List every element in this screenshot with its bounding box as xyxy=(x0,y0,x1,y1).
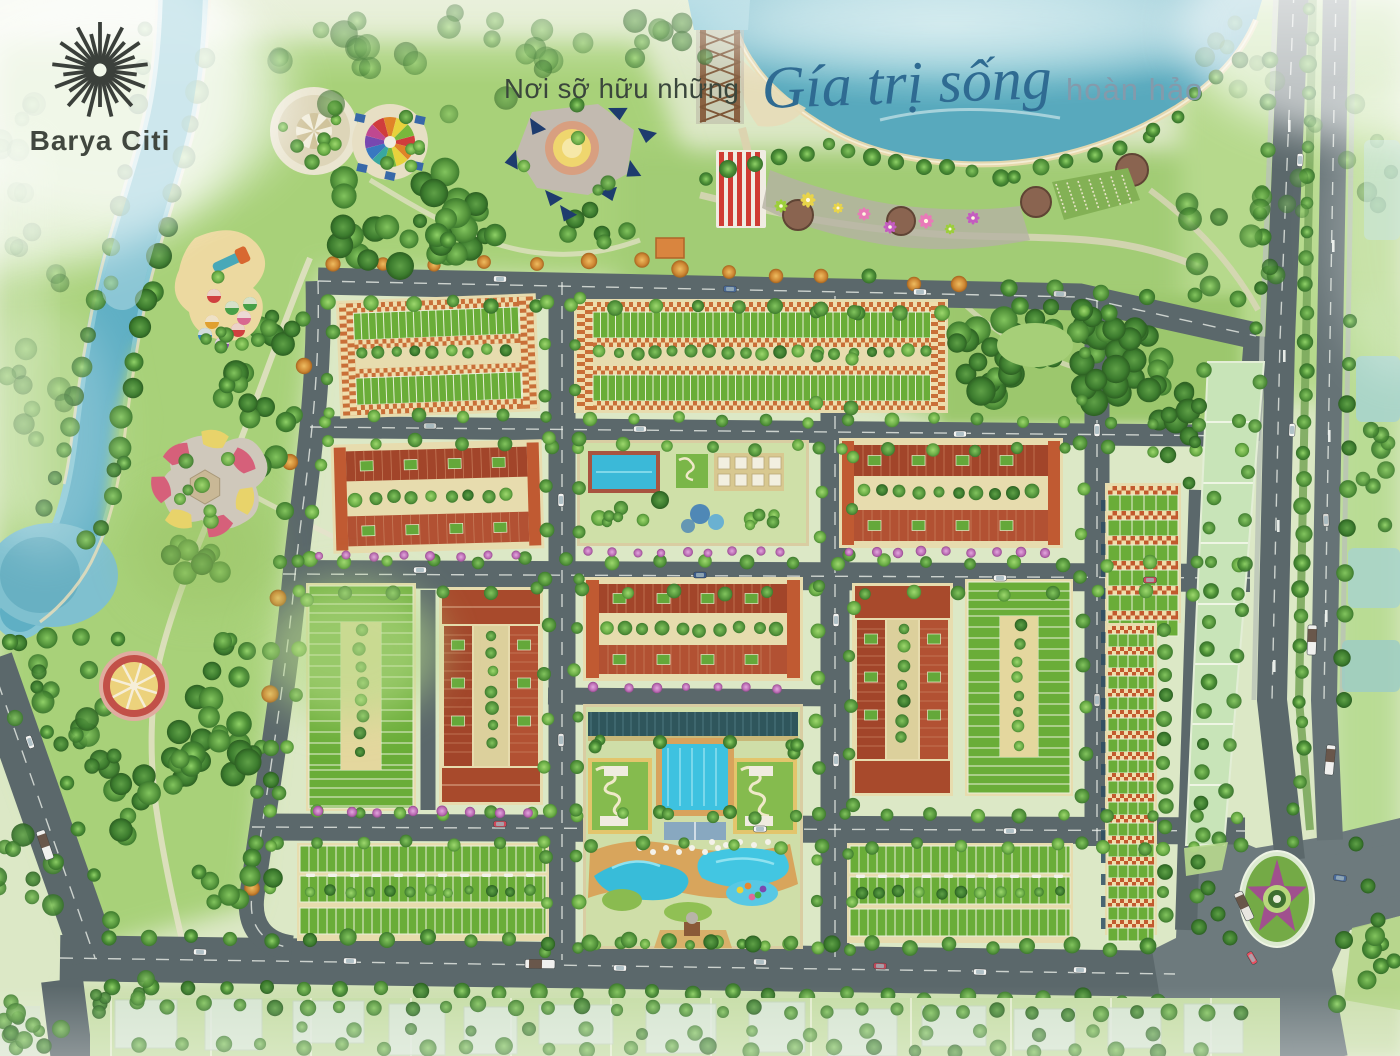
svg-text:hoàn hảo: hoàn hảo xyxy=(1066,72,1203,107)
svg-text:Barya Citi: Barya Citi xyxy=(30,125,171,156)
svg-text:Gía trị sống: Gía trị sống xyxy=(761,45,1053,121)
svg-text:Nơi sỡ hữu những: Nơi sỡ hữu những xyxy=(504,73,739,104)
